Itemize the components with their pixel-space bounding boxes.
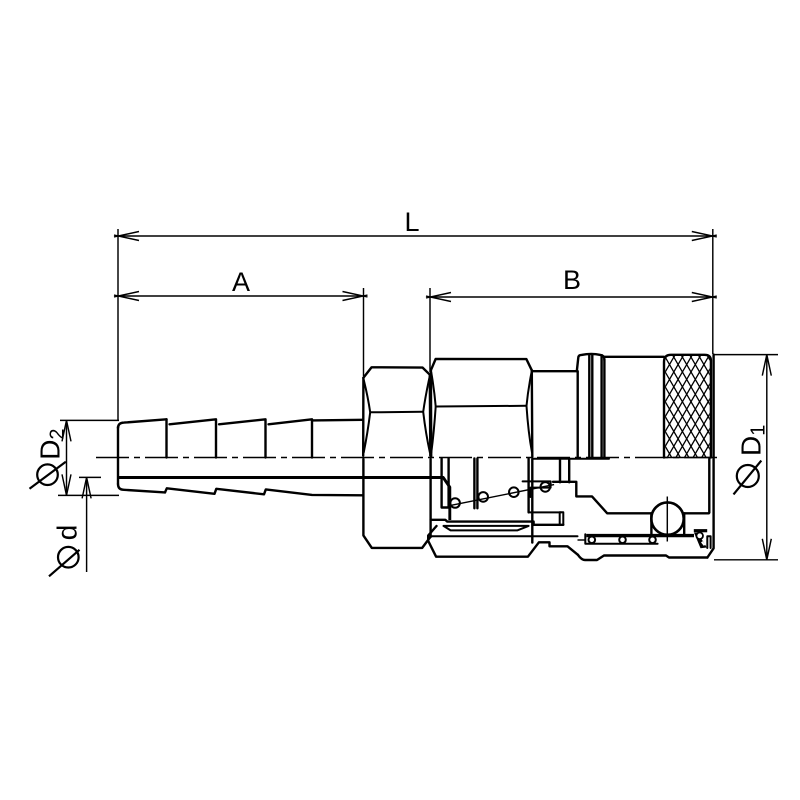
svg-text:B: B (563, 265, 581, 295)
svg-text:A: A (232, 267, 250, 297)
svg-text:d: d (52, 525, 83, 541)
svg-text:L: L (404, 207, 419, 237)
